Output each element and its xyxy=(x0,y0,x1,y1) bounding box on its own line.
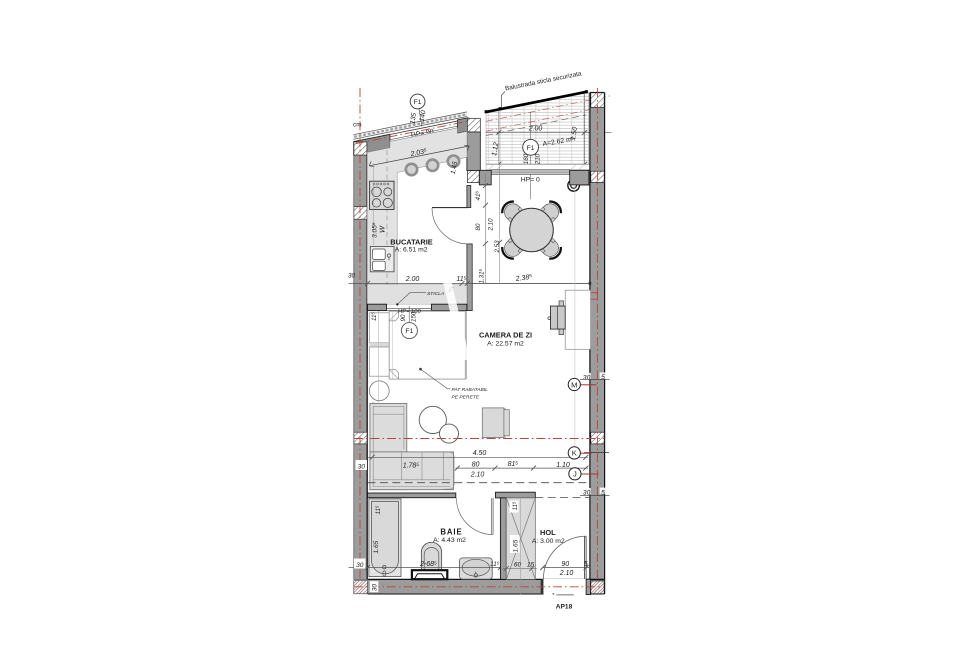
svg-text:2.00: 2.00 xyxy=(405,276,420,283)
svg-text:30: 30 xyxy=(348,273,356,280)
svg-text:1.65: 1.65 xyxy=(373,540,380,553)
svg-text:30: 30 xyxy=(356,562,364,569)
svg-text:CAMERA DE ZI: CAMERA DE ZI xyxy=(479,330,532,339)
svg-text:30: 30 xyxy=(372,584,379,592)
svg-text:5: 5 xyxy=(584,561,588,568)
svg-text:150: 150 xyxy=(411,311,418,322)
svg-text:1.10: 1.10 xyxy=(556,462,570,469)
svg-text:81⁵: 81⁵ xyxy=(508,461,519,468)
svg-text:HOL: HOL xyxy=(540,528,556,537)
svg-text:HP= 0: HP= 0 xyxy=(521,177,540,184)
svg-text:11⁵: 11⁵ xyxy=(512,501,519,510)
svg-text:15: 15 xyxy=(527,561,535,568)
svg-text:BUCATARIE: BUCATARIE xyxy=(390,237,432,246)
svg-text:11⁵: 11⁵ xyxy=(456,276,466,283)
svg-text:2.00: 2.00 xyxy=(528,126,543,133)
svg-text:5: 5 xyxy=(601,374,605,381)
svg-text:2.53: 2.53 xyxy=(494,240,501,254)
svg-text:A: 3.00 m2: A: 3.00 m2 xyxy=(532,538,565,545)
svg-text:PAT RABATABIL: PAT RABATABIL xyxy=(452,387,489,393)
svg-text:90: 90 xyxy=(400,314,407,321)
svg-text:A: 6.51 m2: A: 6.51 m2 xyxy=(395,247,428,254)
svg-text:41⁶: 41⁶ xyxy=(475,191,482,201)
svg-text:2.10: 2.10 xyxy=(488,218,495,232)
svg-text:2.10: 2.10 xyxy=(559,570,574,577)
svg-text:160: 160 xyxy=(523,153,530,164)
svg-text:K: K xyxy=(572,449,577,458)
svg-text:2-68⁵: 2-68⁵ xyxy=(419,561,437,568)
svg-text:30: 30 xyxy=(583,375,591,382)
svg-text:F1: F1 xyxy=(414,99,422,106)
svg-text:1.78⁵: 1.78⁵ xyxy=(403,463,420,470)
svg-text:A: 4.43 m2: A: 4.43 m2 xyxy=(433,537,466,544)
svg-text:30: 30 xyxy=(583,490,591,497)
svg-text:30: 30 xyxy=(358,463,366,470)
svg-text:J: J xyxy=(573,470,577,479)
svg-text:BAIE: BAIE xyxy=(440,527,462,536)
svg-text:11⁵: 11⁵ xyxy=(371,312,378,321)
svg-text:80: 80 xyxy=(475,223,482,230)
svg-text:5: 5 xyxy=(601,489,605,496)
svg-text:11⁵: 11⁵ xyxy=(490,561,499,568)
svg-text:A: 22.57 m2: A: 22.57 m2 xyxy=(487,340,524,347)
svg-text:210: 210 xyxy=(535,153,542,165)
svg-text:F1: F1 xyxy=(405,328,413,335)
svg-text:90: 90 xyxy=(561,561,569,568)
svg-text:AP18: AP18 xyxy=(556,603,573,610)
svg-text:11⁵: 11⁵ xyxy=(375,505,382,514)
svg-text:2.10: 2.10 xyxy=(470,471,485,478)
svg-text:M: M xyxy=(571,380,577,389)
svg-text:STICLA: STICLA xyxy=(427,291,444,297)
svg-text:F1: F1 xyxy=(527,145,535,152)
svg-text:4.50: 4.50 xyxy=(473,450,487,457)
svg-text:W: W xyxy=(378,225,387,233)
svg-text:PE PERETE: PE PERETE xyxy=(452,395,480,401)
svg-text:80: 80 xyxy=(472,461,480,468)
svg-text:1.31⁵: 1.31⁵ xyxy=(479,268,486,283)
svg-text:1.65: 1.65 xyxy=(513,539,520,552)
